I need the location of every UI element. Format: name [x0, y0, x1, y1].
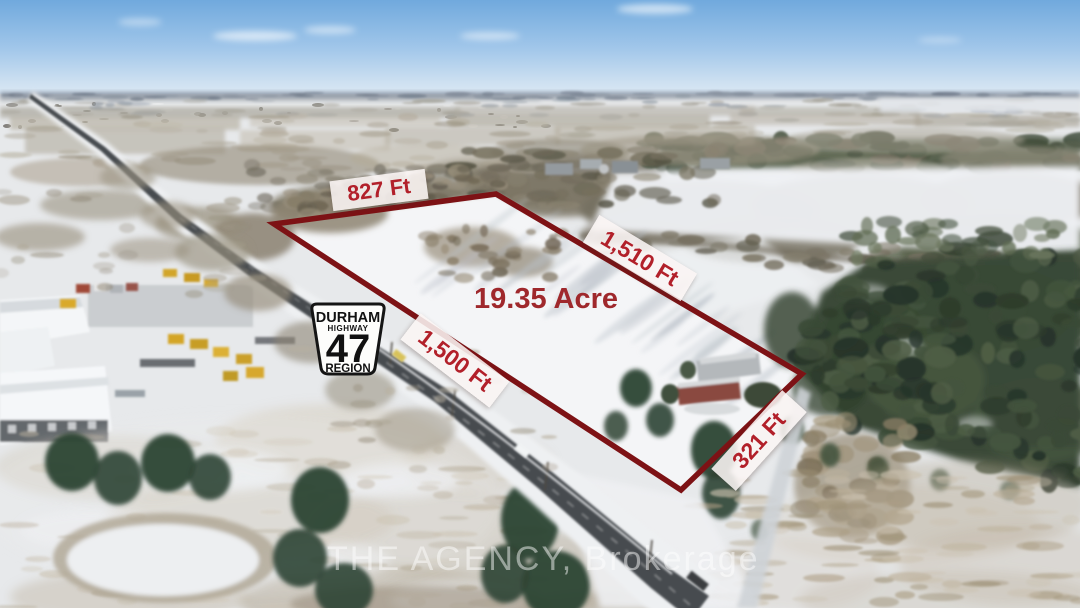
svg-text:REGION: REGION	[325, 363, 370, 375]
